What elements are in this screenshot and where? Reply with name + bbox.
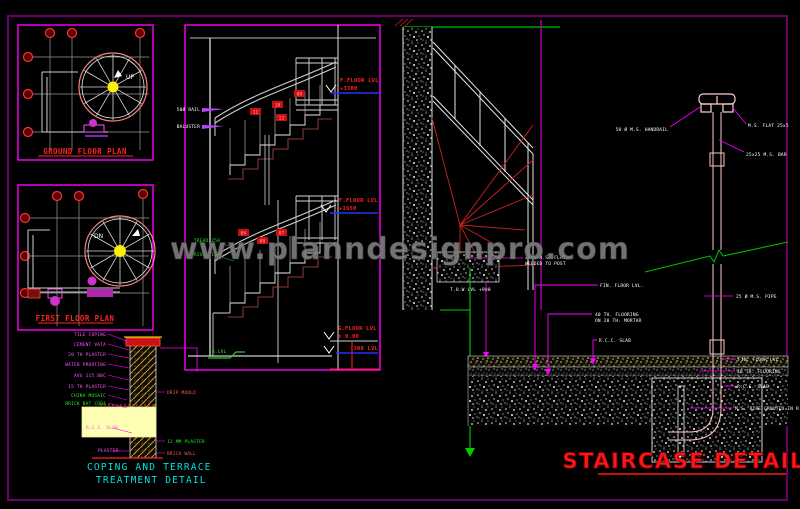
- dn-label: DN: [94, 233, 103, 240]
- level-2-text: F.FLOOR LVL: [339, 198, 378, 204]
- first-plan-step-block: [28, 289, 40, 298]
- svg-text:11: 11: [253, 110, 259, 116]
- coping-note: AVG 115 BBC: [74, 373, 106, 379]
- drawing-title: STAIRCASE DETAILS: [562, 449, 800, 474]
- stair-center-post: [114, 245, 126, 257]
- slab-note: R.C.C. SLAB: [737, 384, 769, 390]
- first-plan-fixture: [88, 277, 97, 286]
- wall-section: [403, 27, 432, 310]
- handrail-note: 50 Ø M.S. HANDRAIL: [616, 126, 668, 133]
- section-left-label-1: 50Ø RAIL: [177, 106, 200, 113]
- ground-plan-label: GROUND FLOOR PLAN: [43, 147, 127, 156]
- level-1-value: +3300: [340, 86, 358, 92]
- coping-caption-line2: TREATMENT DETAIL: [96, 475, 207, 486]
- svg-text:12: 12: [279, 116, 285, 122]
- slab-note-2b: ON 20 TH. MORTAR: [595, 318, 642, 324]
- stair-center-post: [108, 82, 119, 93]
- svg-text:09: 09: [297, 92, 303, 98]
- coping-note: TILE COPING: [74, 332, 106, 338]
- svg-text:10: 10: [275, 103, 281, 109]
- cad-canvas: UP GROUND FLOOR PLAN: [0, 0, 800, 509]
- level-1-text: F.FLOOR LVL: [340, 78, 379, 84]
- flat-note: M.S. FLAT 25x5: [748, 123, 789, 129]
- ground-plan-fixture: [89, 119, 97, 127]
- level-3-text: G.FLOOR LVL: [338, 326, 377, 332]
- coping-note-green: 12 MM PLASTER: [167, 439, 205, 445]
- bar-note: 25x25 M.S. BAR: [746, 152, 787, 158]
- anchor-note: M.S. PIPE GROUTED IN R.C.C.: [735, 406, 800, 412]
- first-plan-fixture: [50, 296, 60, 306]
- coping-note: BRICK WALL: [167, 451, 196, 457]
- cad-drawing: UP GROUND FLOOR PLAN: [0, 0, 800, 509]
- coping-note: 15 TH PLASTER: [68, 384, 106, 390]
- gl-label: G.LVL: [212, 349, 227, 355]
- coping-cap: [126, 338, 160, 346]
- first-plan-label: FIRST FLOOR PLAN: [36, 314, 115, 323]
- level-2-value: +1650: [339, 206, 357, 212]
- coping-wall: [130, 340, 156, 458]
- level-3-value: ± 0.00: [338, 334, 359, 340]
- first-plan-hatched-sill: [87, 289, 113, 297]
- slab-note-1: FIN. FLOOR LVL.: [600, 283, 644, 289]
- coping-note: CEMENT VATA: [74, 342, 106, 348]
- slab-note-2a: 40 TH. FLOORING: [595, 312, 639, 318]
- ffl-note: FIN. FLOOR LVL.: [738, 357, 782, 363]
- coping-note: 20 TH PLASTER: [68, 352, 106, 358]
- coping-note: DRIP MOULD: [167, 390, 196, 396]
- flooring-note: 40 TH. FLOORING: [737, 369, 781, 375]
- watermark: www.planndesignpro.com: [170, 232, 630, 267]
- spiral-stair-plan: UP: [79, 53, 147, 121]
- slab-note-3: R.C.C. SLAB: [599, 338, 631, 344]
- terrace-slab: [82, 407, 156, 437]
- coping-note-green: BRICK BAT COBA: [65, 401, 106, 407]
- pipe-note: 25 Ø M.S. PIPE: [736, 293, 777, 300]
- coping-caption-line1: COPING AND TERRACE: [87, 462, 212, 473]
- coping-note: WATER PROOFING: [65, 362, 106, 368]
- coping-note-green: CHINA MOSAIC: [71, 393, 106, 399]
- section-left-label-2: BALUSTER: [177, 124, 200, 130]
- level-4-value: -300 LVL: [350, 346, 379, 352]
- up-label: UP: [126, 74, 134, 81]
- title-text: STAIRCASE DETAILS: [562, 449, 800, 473]
- spiral-stair-plan: DN: [85, 216, 155, 286]
